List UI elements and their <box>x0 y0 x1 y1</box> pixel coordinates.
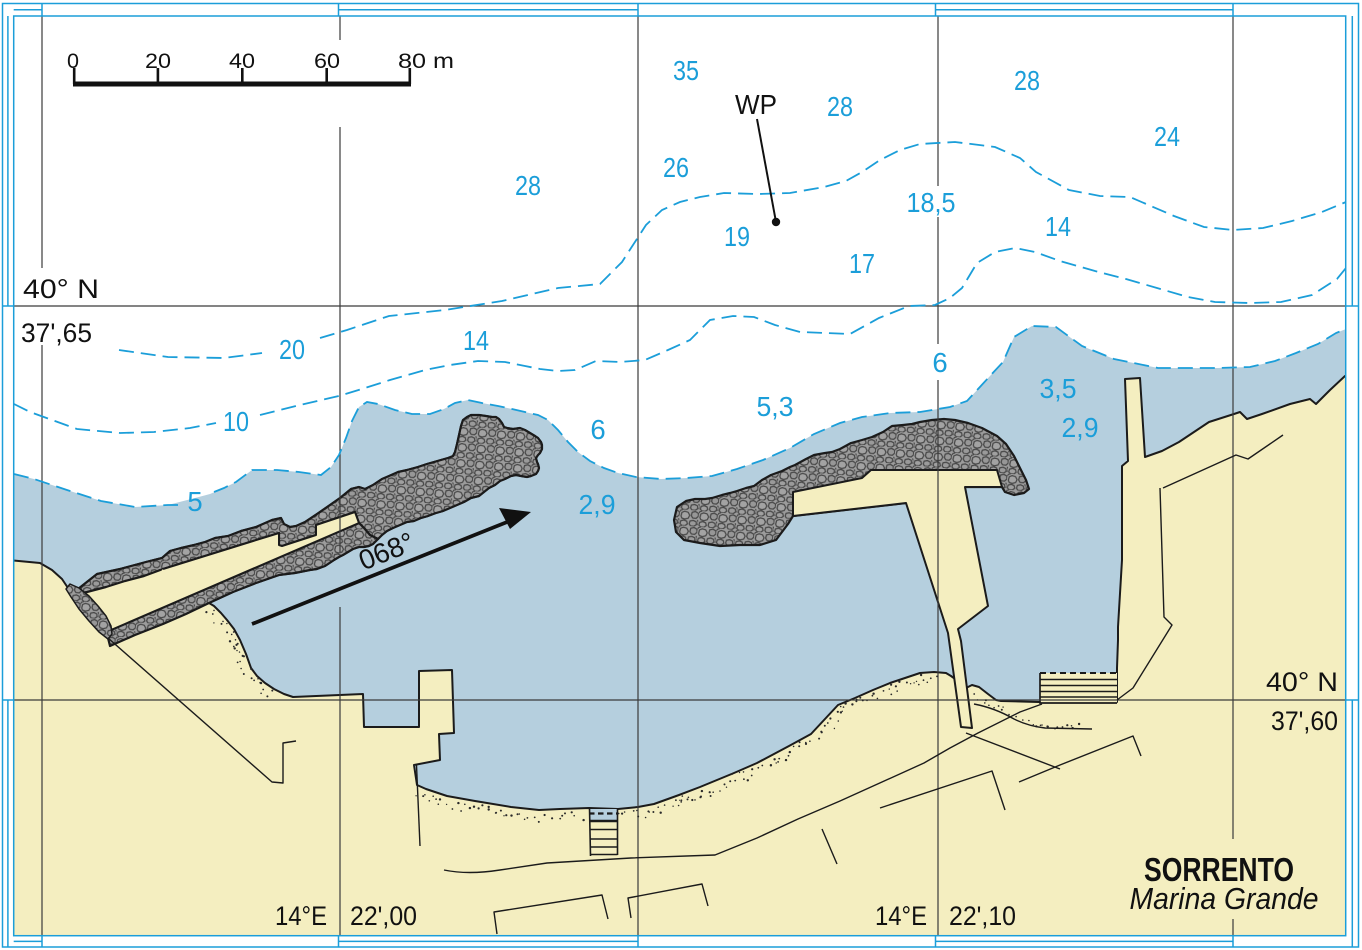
svg-text:40° N: 40° N <box>1266 667 1338 697</box>
svg-text:18,5: 18,5 <box>907 187 956 218</box>
svg-text:0: 0 <box>67 50 79 73</box>
svg-text:80 m: 80 m <box>398 50 454 73</box>
svg-text:17: 17 <box>849 248 875 279</box>
svg-text:14: 14 <box>463 325 489 356</box>
svg-text:14: 14 <box>1045 211 1071 242</box>
svg-text:22',00: 22',00 <box>350 901 417 931</box>
svg-text:2,9: 2,9 <box>1062 412 1099 443</box>
svg-text:5,3: 5,3 <box>757 391 794 422</box>
svg-text:37',60: 37',60 <box>1271 706 1338 736</box>
svg-text:Marina Grande: Marina Grande <box>1130 881 1319 916</box>
svg-text:19: 19 <box>724 221 750 252</box>
svg-text:20: 20 <box>145 50 171 73</box>
svg-text:60: 60 <box>314 50 340 73</box>
svg-text:6: 6 <box>590 414 605 445</box>
svg-text:40° N: 40° N <box>23 274 99 304</box>
svg-text:28: 28 <box>515 170 541 201</box>
svg-text:20: 20 <box>279 334 305 365</box>
svg-text:14°E: 14°E <box>275 901 327 931</box>
svg-text:35: 35 <box>673 55 699 86</box>
svg-text:6: 6 <box>932 347 947 378</box>
svg-text:40: 40 <box>229 50 255 73</box>
svg-text:28: 28 <box>827 91 853 122</box>
svg-text:24: 24 <box>1154 121 1180 152</box>
svg-text:3,5: 3,5 <box>1040 373 1077 404</box>
svg-text:37',65: 37',65 <box>21 318 92 348</box>
svg-text:22',10: 22',10 <box>949 901 1016 931</box>
svg-text:26: 26 <box>663 152 689 183</box>
svg-text:14°E: 14°E <box>875 901 927 931</box>
svg-text:WP: WP <box>735 89 777 120</box>
svg-text:10: 10 <box>223 406 249 437</box>
svg-text:28: 28 <box>1014 65 1040 96</box>
svg-text:5: 5 <box>187 486 202 517</box>
svg-text:2,9: 2,9 <box>579 489 616 520</box>
